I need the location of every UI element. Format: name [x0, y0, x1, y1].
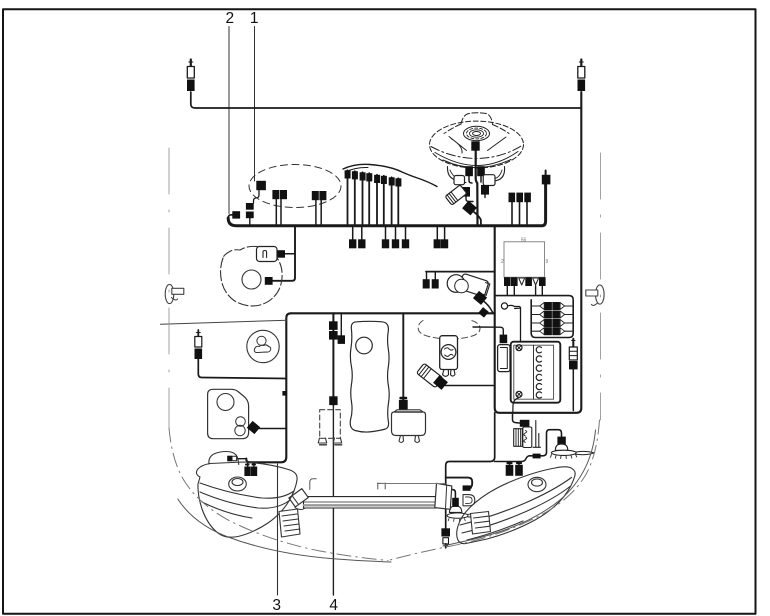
svg-text:4: 4 — [329, 597, 338, 614]
svg-text:1: 1 — [250, 10, 259, 27]
svg-text:2: 2 — [225, 10, 234, 27]
svg-text:56: 56 — [521, 238, 527, 244]
svg-text:2: 2 — [501, 259, 504, 265]
svg-text:3: 3 — [272, 597, 281, 614]
svg-text:9: 9 — [546, 259, 549, 265]
